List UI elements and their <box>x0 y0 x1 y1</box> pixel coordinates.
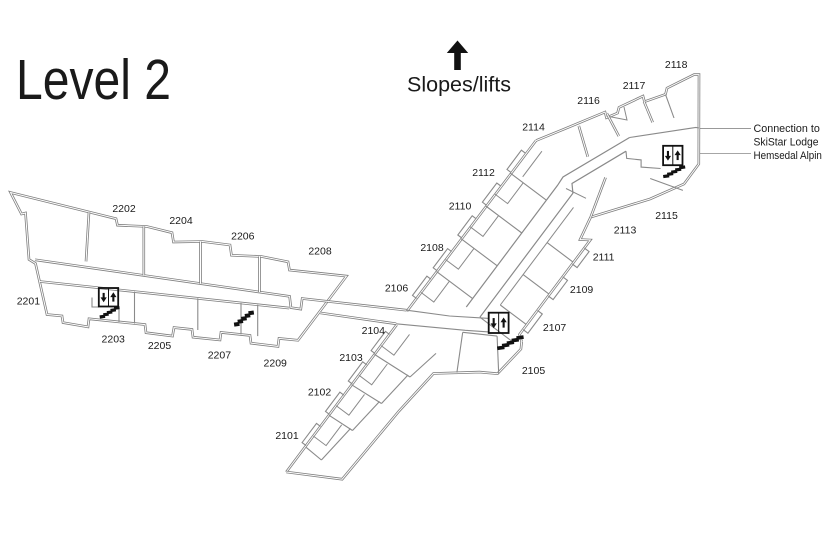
svg-text:Hemsedal Alpin: Hemsedal Alpin <box>754 150 822 162</box>
svg-text:2102: 2102 <box>308 386 332 398</box>
svg-text:2202: 2202 <box>112 203 136 215</box>
svg-text:2118: 2118 <box>665 59 688 71</box>
svg-text:Level 2: Level 2 <box>16 48 171 112</box>
svg-text:2116: 2116 <box>577 95 600 107</box>
svg-text:2207: 2207 <box>208 350 232 362</box>
svg-text:2113: 2113 <box>614 224 637 236</box>
svg-text:SkiStar Lodge: SkiStar Lodge <box>754 136 819 148</box>
svg-text:2206: 2206 <box>231 230 255 242</box>
svg-text:2208: 2208 <box>308 246 332 258</box>
svg-text:Connection to: Connection to <box>754 123 820 135</box>
svg-text:2110: 2110 <box>449 201 472 213</box>
svg-text:2112: 2112 <box>472 167 495 179</box>
svg-text:2201: 2201 <box>17 296 41 308</box>
svg-text:2106: 2106 <box>385 282 409 294</box>
svg-text:2104: 2104 <box>362 325 386 337</box>
svg-text:2101: 2101 <box>275 430 299 442</box>
svg-text:2108: 2108 <box>420 242 444 254</box>
svg-text:2107: 2107 <box>543 322 567 334</box>
svg-text:2205: 2205 <box>148 340 172 352</box>
svg-text:2117: 2117 <box>623 80 646 92</box>
svg-text:2204: 2204 <box>169 215 193 227</box>
svg-text:2103: 2103 <box>339 352 363 364</box>
svg-text:2203: 2203 <box>102 334 126 346</box>
svg-text:2209: 2209 <box>264 358 288 370</box>
svg-text:2114: 2114 <box>522 122 545 134</box>
svg-text:2109: 2109 <box>570 284 594 296</box>
svg-text:Slopes/lifts: Slopes/lifts <box>407 73 511 97</box>
svg-text:2115: 2115 <box>655 210 678 222</box>
svg-text:2105: 2105 <box>522 365 546 377</box>
svg-text:2111: 2111 <box>593 252 615 264</box>
